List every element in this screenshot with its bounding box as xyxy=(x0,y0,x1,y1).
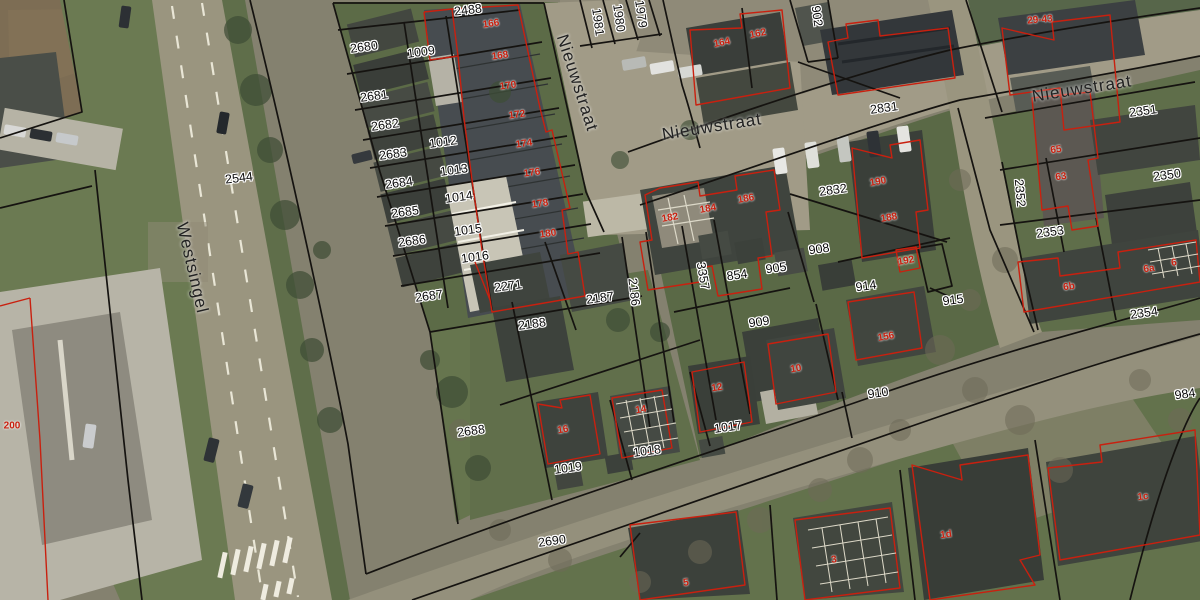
house-number-label: 200 xyxy=(4,421,21,432)
house-number-label: 172 xyxy=(508,108,526,121)
house-number-label: 180 xyxy=(539,227,557,240)
parcel-number-label: 2352 xyxy=(1012,179,1028,208)
parcel-number-label: 905 xyxy=(765,260,788,277)
house-number-label: 1d xyxy=(939,529,952,542)
house-number-label: 188 xyxy=(880,211,898,225)
parcel-number-label: 909 xyxy=(748,314,771,331)
parcel-number-label: 2353 xyxy=(1035,223,1064,241)
house-number-label: 10 xyxy=(790,363,803,376)
house-number-label: 184 xyxy=(699,202,717,216)
parcel-number-label: 1015 xyxy=(453,221,482,239)
parcel-number-label: 2683 xyxy=(378,145,407,163)
parcel-number-label: 2488 xyxy=(453,1,482,18)
cadastral-map-viewport[interactable]: 2488268010092681268210122683101326841014… xyxy=(0,0,1200,600)
house-number-label: 12 xyxy=(711,382,724,395)
parcel-number-label: 2686 xyxy=(397,232,426,250)
parcel-number-label: 915 xyxy=(942,292,965,309)
parcel-number-label: 2187 xyxy=(585,289,614,307)
parcel-number-label: 910 xyxy=(867,385,890,402)
house-number-label: 178 xyxy=(531,197,549,210)
house-number-label: 170 xyxy=(499,79,517,92)
parcel-number-label: 2271 xyxy=(493,277,522,295)
parcel-number-label: 2544 xyxy=(224,169,253,186)
parcel-number-label: 1979 xyxy=(632,0,650,29)
parcel-number-label: 2832 xyxy=(818,181,847,199)
house-number-label: 14 xyxy=(635,404,648,417)
parcel-number-label: 914 xyxy=(855,278,878,295)
house-number-label: 65 xyxy=(1050,144,1063,156)
parcel-number-label: 1014 xyxy=(444,188,473,206)
house-number-label: 166 xyxy=(482,17,500,30)
parcel-number-label: 1013 xyxy=(439,161,468,179)
house-number-label: 63 xyxy=(1055,171,1068,183)
parcel-number-label: 902 xyxy=(809,5,826,28)
house-number-label: 162 xyxy=(749,27,768,41)
house-number-label: 190 xyxy=(869,175,887,189)
parcel-number-label: 1981 xyxy=(589,7,607,36)
map-label-layer: 2488268010092681268210122683101326841014… xyxy=(0,0,1200,600)
parcel-number-label: 2354 xyxy=(1129,304,1158,322)
house-number-label: 5 xyxy=(682,577,689,589)
street-name-label: Westsingel xyxy=(172,221,212,316)
house-number-label: 176 xyxy=(523,166,541,179)
street-name-label: Nieuwstraat xyxy=(1031,71,1134,107)
house-number-label: 164 xyxy=(713,36,732,50)
house-number-label: 168 xyxy=(491,49,509,62)
house-number-label: 182 xyxy=(661,211,679,225)
street-name-label: Nieuwstraat xyxy=(661,109,764,145)
parcel-number-label: 908 xyxy=(808,241,831,258)
house-number-label: 156 xyxy=(877,330,895,344)
parcel-number-label: 2188 xyxy=(517,315,546,333)
parcel-number-label: 2680 xyxy=(349,38,378,56)
parcel-number-label: 2688 xyxy=(456,422,485,440)
parcel-number-label: 1980 xyxy=(610,3,628,32)
parcel-number-label: 2831 xyxy=(869,99,898,117)
house-number-label: 186 xyxy=(737,192,755,206)
parcel-number-label: 2351 xyxy=(1128,102,1157,120)
parcel-number-label: 1009 xyxy=(406,43,435,61)
house-number-label: 1c xyxy=(1137,491,1150,503)
parcel-number-label: 3357 xyxy=(694,261,713,291)
house-number-label: 29-43 xyxy=(1027,13,1053,26)
house-number-label: 6b xyxy=(1062,281,1075,294)
parcel-number-label: 1017 xyxy=(713,418,742,436)
parcel-number-label: 2685 xyxy=(390,203,419,221)
parcel-number-label: 2186 xyxy=(625,277,642,306)
parcel-number-label: 2690 xyxy=(537,532,566,550)
parcel-number-label: 1018 xyxy=(632,442,661,460)
parcel-number-label: 2682 xyxy=(370,116,399,134)
house-number-label: 3 xyxy=(830,554,837,566)
parcel-number-label: 984 xyxy=(1174,386,1197,403)
parcel-number-label: 2687 xyxy=(414,287,443,305)
parcel-number-label: 2684 xyxy=(384,174,413,192)
house-number-label: 192 xyxy=(897,254,915,268)
house-number-label: 6 xyxy=(1170,257,1177,269)
parcel-number-label: 1016 xyxy=(460,248,489,266)
street-name-label: Nieuwstraat xyxy=(552,32,602,134)
parcel-number-label: 2350 xyxy=(1152,166,1181,184)
parcel-number-label: 854 xyxy=(726,267,749,284)
parcel-number-label: 2681 xyxy=(359,87,388,105)
house-number-label: 174 xyxy=(515,137,533,150)
house-number-label: 6a xyxy=(1143,263,1156,275)
house-number-label: 16 xyxy=(557,424,570,437)
parcel-number-label: 1019 xyxy=(553,459,582,477)
parcel-number-label: 1012 xyxy=(428,133,457,151)
